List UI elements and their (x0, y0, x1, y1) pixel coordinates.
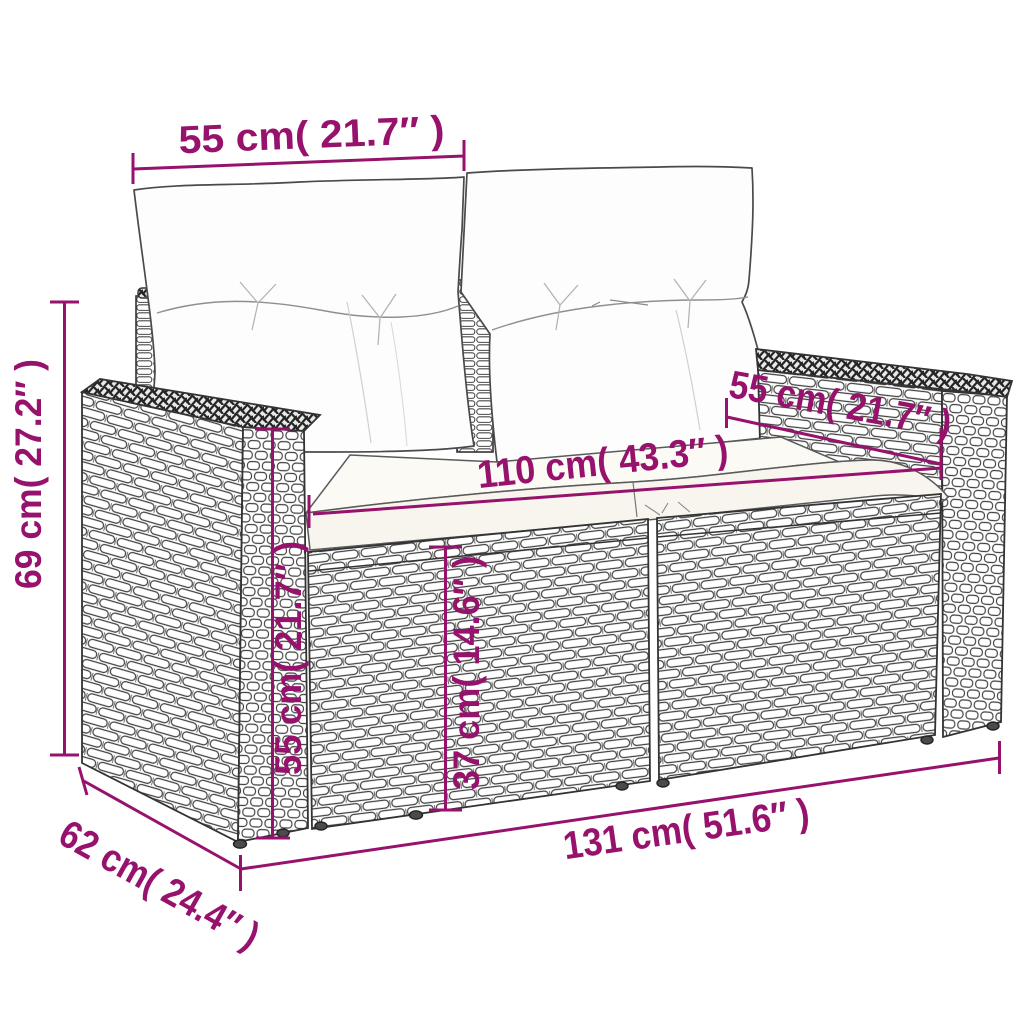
svg-text:55 cm( 21.7″ ): 55 cm( 21.7″ ) (178, 109, 446, 163)
svg-text:37 cm( 14.6″ ): 37 cm( 14.6″ ) (446, 556, 487, 790)
svg-text:55 cm( 21.7″ ): 55 cm( 21.7″ ) (268, 541, 309, 775)
svg-text:69 cm( 27.2″ ): 69 cm( 27.2″ ) (8, 359, 49, 589)
